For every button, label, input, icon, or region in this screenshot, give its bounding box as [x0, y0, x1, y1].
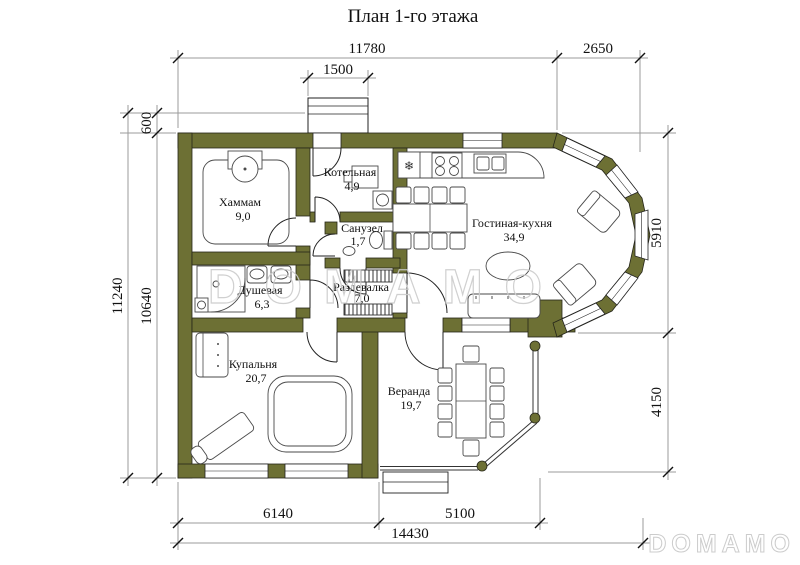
boiler-room-door [315, 197, 340, 222]
floor-plan-canvas: План 1-го этажа 11780 2650 [0, 0, 800, 565]
furniture-veranda [438, 346, 504, 456]
hammam-door [268, 218, 296, 246]
veranda-door [405, 332, 443, 370]
floor-plan-page: План 1-го этажа 11780 2650 [0, 0, 800, 565]
lounge-chair [188, 411, 256, 467]
dim-bottom-5100: 5100 [445, 506, 475, 522]
room-area-bathing: 20,7 [246, 371, 267, 385]
armchair [576, 190, 622, 235]
room-label-boiler: Котельная [324, 165, 377, 179]
room-label-hammam: Хаммам [219, 195, 261, 209]
room-area-living: 34,9 [504, 230, 525, 244]
plan-title: План 1-го этажа [348, 6, 479, 27]
veranda-post [477, 461, 487, 471]
room-area-hammam: 9,0 [236, 209, 251, 223]
furniture-bathing-room [188, 333, 352, 467]
dim-top-2650: 2650 [583, 41, 613, 57]
veranda-post [530, 341, 540, 351]
sofa [196, 333, 228, 377]
dim-top-1500: 1500 [323, 62, 353, 78]
wc-door [313, 234, 335, 256]
dim-bottom-6140: 6140 [263, 506, 293, 522]
dim-right-4150: 4150 [649, 387, 665, 417]
veranda-steps [383, 472, 448, 493]
room-label-wc: Санузел [341, 221, 383, 235]
bathing-room-door [307, 332, 337, 362]
room-label-living: Гостиная-кухня [472, 216, 553, 230]
veranda-post [530, 413, 540, 423]
room-area-boiler: 4,9 [345, 179, 360, 193]
dim-left-10640: 10640 [139, 287, 155, 325]
fridge-snowflake-icon: ❄ [404, 159, 414, 173]
dim-top-11780: 11780 [349, 41, 386, 57]
dim-left-600: 600 [139, 112, 155, 135]
room-label-bathing: Купальня [229, 357, 278, 371]
dim-left-11240: 11240 [110, 278, 126, 315]
pool [268, 376, 352, 452]
entrance-porch [308, 98, 368, 133]
watermark-center: DOMAMO [208, 261, 564, 314]
room-area-veranda: 19,7 [401, 398, 422, 412]
porch-door-opening [313, 133, 341, 148]
room-area-wc: 1,7 [351, 234, 366, 248]
room-label-veranda: Веранда [388, 384, 431, 398]
watermark-corner: DOMAMO [648, 530, 795, 558]
dim-bottom-14430: 14430 [391, 526, 429, 542]
dim-right-5910: 5910 [649, 218, 665, 248]
